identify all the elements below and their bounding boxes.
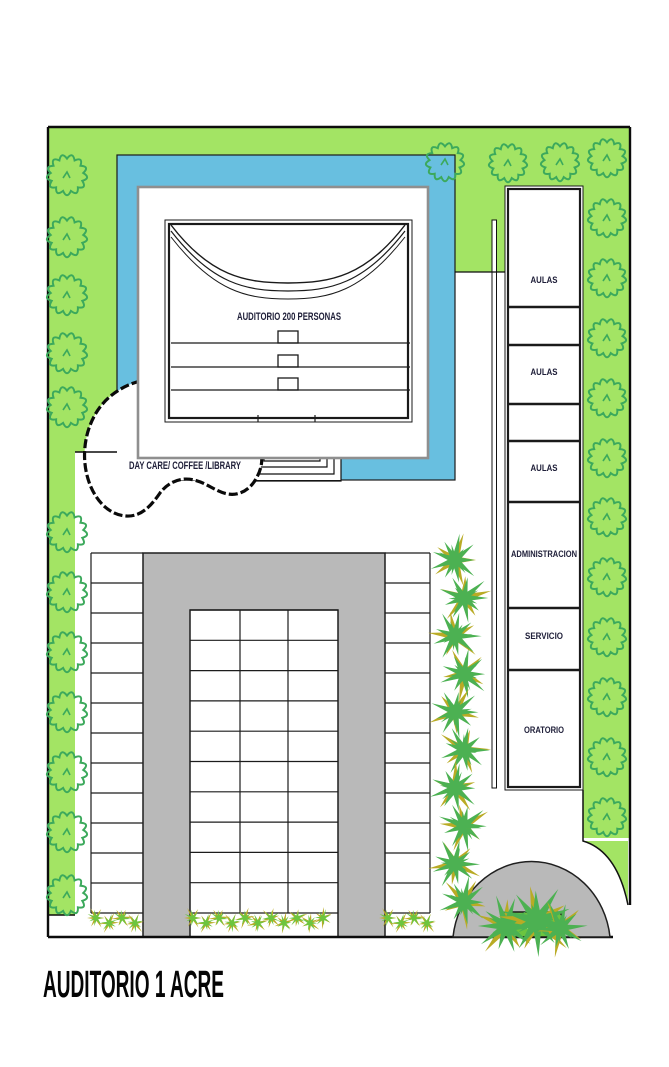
room-aulas-1-label: AULAS <box>531 275 558 286</box>
drawing-title: AUDITORIO 1 ACRE <box>43 964 224 1006</box>
corridor-wall <box>492 220 497 788</box>
corridor-area <box>455 272 505 453</box>
room-administracion-label: ADMINISTRACION <box>511 549 577 560</box>
site-plan-page: AUDITORIO 200 PERSONAS DAY CARE/ COFFEE … <box>0 0 669 1067</box>
auditorium-label: AUDITORIO 200 PERSONAS <box>237 311 341 323</box>
room-aulas-3-label: AULAS <box>531 463 558 474</box>
site-plan-drawing: AUDITORIO 200 PERSONAS DAY CARE/ COFFEE … <box>0 0 669 1067</box>
room-aulas-2-label: AULAS <box>531 367 558 378</box>
southwest-margin <box>48 915 75 937</box>
daycare-label: DAY CARE/ COFFEE /LIBRARY <box>129 460 241 472</box>
room-servicio-label: SERVICIO <box>525 631 563 642</box>
room-oratorio-label: ORATORIO <box>524 725 564 736</box>
